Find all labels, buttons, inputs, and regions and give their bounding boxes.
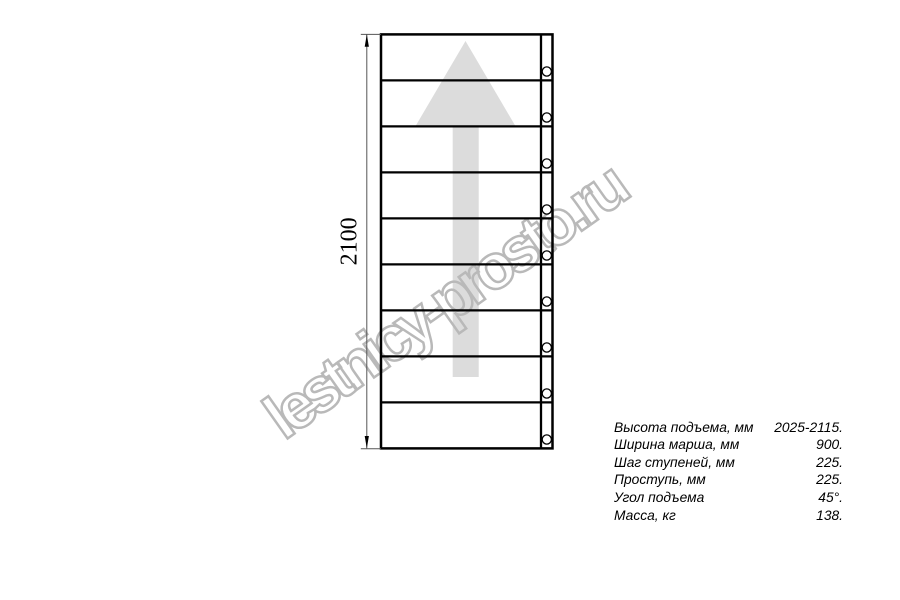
svg-text:2100: 2100 [337, 217, 363, 265]
svg-text:lestnicy-prosto.ru: lestnicy-prosto.ru [252, 150, 640, 452]
